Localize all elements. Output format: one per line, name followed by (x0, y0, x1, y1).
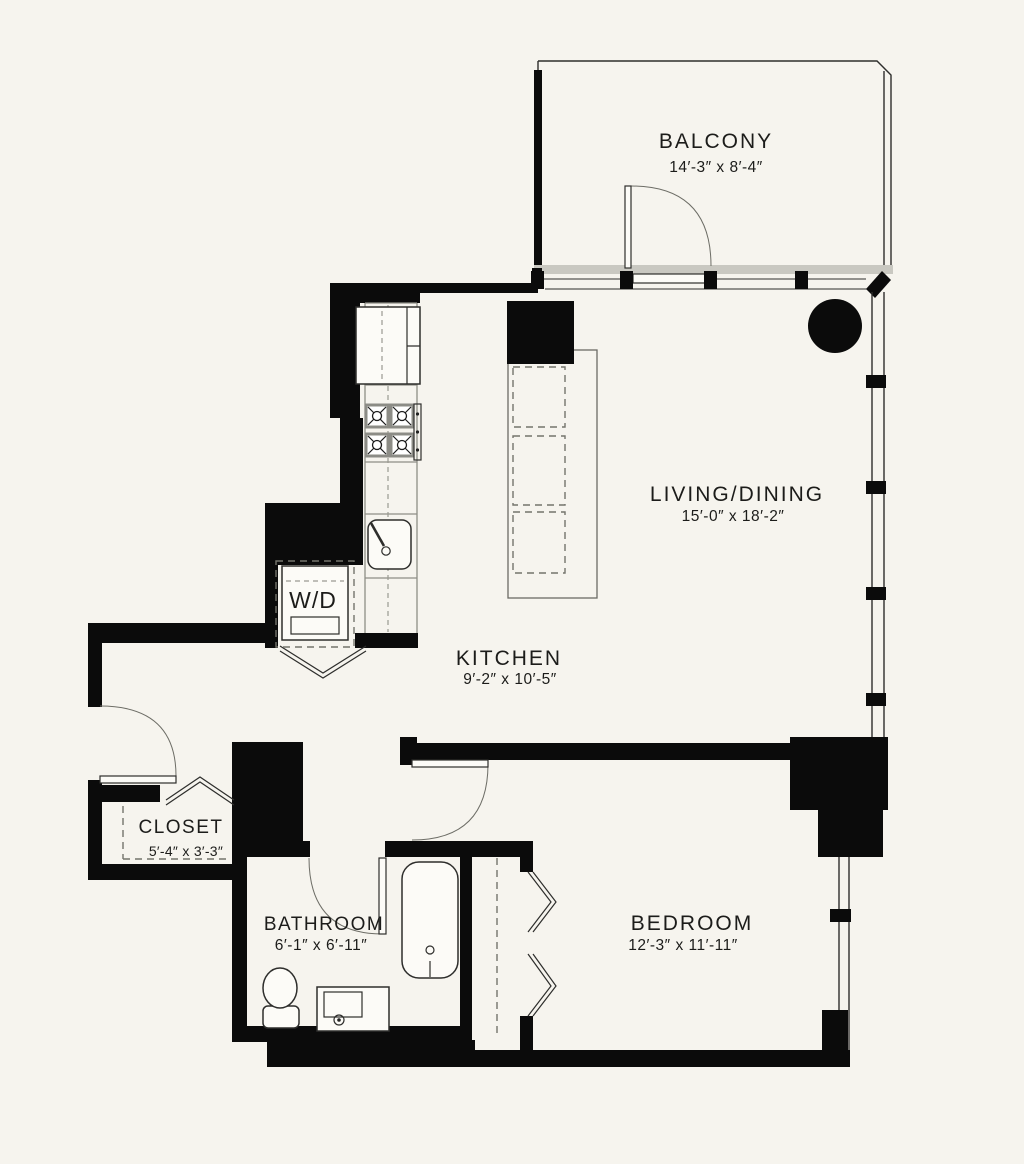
living-window-wall (866, 292, 886, 740)
corner-mullion (866, 271, 891, 298)
balcony-label: BALCONY (659, 130, 773, 153)
wall-segment (818, 810, 883, 857)
wall-segment (355, 633, 418, 648)
balcony-door (625, 186, 711, 268)
sliding-door-panel (633, 274, 707, 283)
entry-door (100, 706, 176, 783)
balcony-left-edge-wall (534, 70, 542, 268)
window-mullion (795, 271, 808, 289)
window-mullion (866, 481, 886, 494)
door-leaf (100, 776, 176, 783)
window-mullion (704, 271, 717, 289)
door-swing-arc (100, 706, 176, 776)
bedroom-dims: 12′-3″ x 11′-11″ (628, 937, 738, 954)
round-column (808, 299, 862, 353)
kitchen-fixtures (356, 301, 597, 633)
living-label: LIVING/DINING (650, 483, 824, 506)
bathtub (402, 862, 458, 978)
wall-segment (88, 864, 240, 880)
wall-segment (418, 283, 538, 293)
kitchen-island (508, 350, 597, 598)
floor-plan: W/D BALCONY 14′-3″ x 8′-4″ LIVING/DINING… (0, 0, 1024, 1164)
window-mullion (830, 909, 851, 922)
bathroom-dims: 6′-1″ x 6′-11″ (275, 937, 367, 954)
wall-segment (88, 785, 160, 802)
window-end-block (822, 1010, 848, 1055)
wall-segment (475, 1050, 850, 1067)
bedroom-door (412, 760, 488, 840)
wall-segment (532, 268, 542, 286)
wall-segment (790, 737, 888, 810)
door-leaf (625, 186, 631, 268)
burner (366, 434, 388, 456)
vanity-sink (317, 987, 389, 1031)
wall-segment (460, 855, 472, 1038)
balcony-dims: 14′-3″ x 8′-4″ (669, 159, 763, 176)
washer-dryer: W/D (276, 561, 354, 647)
refrigerator (356, 307, 420, 384)
wall-segment (265, 503, 363, 565)
range-stove (366, 404, 421, 460)
window-mullion (866, 693, 886, 706)
wall-segment (340, 418, 363, 505)
wd-label: W/D (289, 587, 337, 613)
closet-jamb (520, 848, 533, 872)
kitchen-dims: 9′-2″ x 10′-5″ (463, 671, 557, 688)
burner (391, 405, 413, 427)
burner (366, 405, 388, 427)
wall-segment (232, 742, 303, 848)
kitchen-label: KITCHEN (456, 647, 562, 670)
bedroom-label: BEDROOM (631, 912, 754, 935)
window-mullion (866, 587, 886, 600)
balcony-window-band (531, 265, 893, 298)
closet-dims: 5′-4″ x 3′-3″ (149, 843, 223, 859)
burner (391, 434, 413, 456)
wall-segment (385, 841, 533, 857)
bedroom-window-wall (822, 857, 851, 1062)
door-swing-arc (631, 186, 711, 266)
wall-segment (88, 643, 102, 707)
wall-segment (400, 743, 835, 760)
toilet (263, 968, 299, 1028)
closet-label: CLOSET (138, 817, 223, 838)
kitchen-sink (368, 520, 411, 569)
closet-jamb (520, 1016, 533, 1052)
wall-segment (267, 1040, 475, 1067)
wall-segment (232, 848, 247, 1035)
bedroom-closet-bifold-doors (528, 872, 556, 1016)
island-column (507, 301, 574, 364)
wall-segment (232, 841, 310, 857)
window-glass-lines (872, 292, 884, 740)
floor-plan-page: W/D BALCONY 14′-3″ x 8′-4″ LIVING/DINING… (0, 0, 1024, 1164)
window-mullion (620, 271, 633, 289)
living-dims: 15′-0″ x 18′-2″ (682, 508, 785, 525)
wall-segment (88, 623, 275, 643)
door-leaf (412, 760, 488, 767)
bathroom-label: BATHROOM (264, 914, 384, 935)
door-swing-arc (412, 764, 488, 840)
laundry-bifold-door (280, 646, 366, 678)
window-mullion (866, 375, 886, 388)
